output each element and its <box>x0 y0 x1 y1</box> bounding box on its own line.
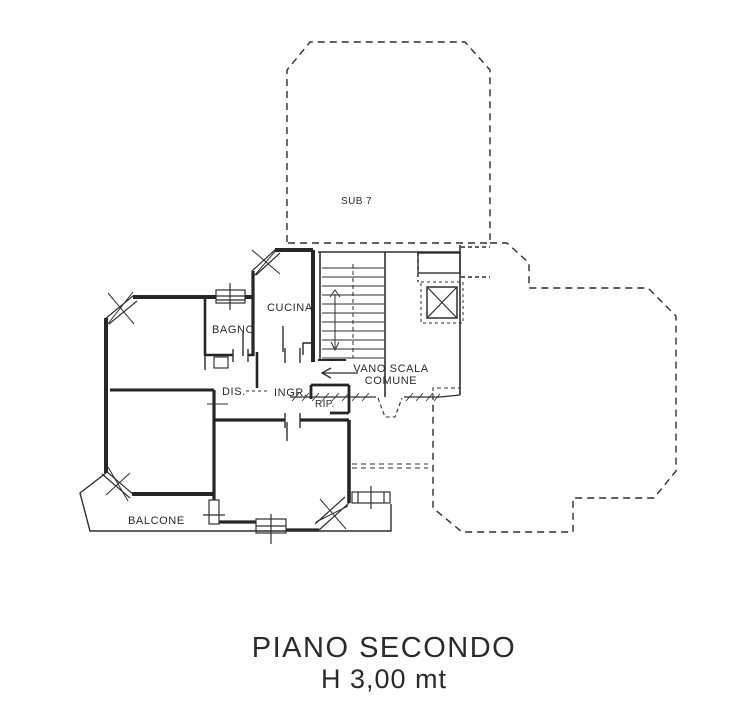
lobby-closet <box>418 253 460 273</box>
living-corner-window <box>315 497 349 530</box>
southwest-corner-window <box>102 467 134 501</box>
floor-plan-drawing: SUB 7 CUCINA BAGNO DIS. INGR. RIP. VANO … <box>0 0 754 725</box>
bath-door <box>233 333 248 362</box>
storage-south-window <box>352 486 390 509</box>
living-south-window <box>256 514 286 544</box>
floor-title: PIANO SECONDO <box>252 632 516 664</box>
floor-plan-page: SUB 7 CUCINA BAGNO DIS. INGR. RIP. VANO … <box>0 0 754 725</box>
sub-label: SUB 7 <box>341 196 372 207</box>
kitchen-corner-window <box>252 248 280 276</box>
elevator-x-icon <box>427 287 457 318</box>
kitchen-door <box>283 326 300 363</box>
north-window <box>216 283 245 310</box>
title-block: PIANO SECONDO H 3,00 mt <box>252 632 516 694</box>
right-wing-outline <box>433 243 676 532</box>
room-label-cucina: CUCINA <box>267 302 313 314</box>
light-well <box>378 398 402 417</box>
labels: SUB 7 CUCINA BAGNO DIS. INGR. RIP. VANO … <box>128 196 429 527</box>
top-wing-outline <box>287 42 490 242</box>
living-door <box>285 413 300 441</box>
room-label-ingr: INGR. <box>274 387 308 399</box>
floor-height: H 3,00 mt <box>321 664 447 694</box>
room-label-rip: RIP. <box>315 399 335 410</box>
room-label-bagno: BAGNO <box>212 324 255 336</box>
building-outline <box>287 42 676 532</box>
room-label-balcone: BALCONE <box>128 515 185 527</box>
room-label-dis: DIS. <box>222 386 246 398</box>
neighbor-balcony-edge <box>352 464 428 468</box>
northwest-corner-window <box>105 292 137 325</box>
bath-fixture <box>214 357 228 368</box>
room-label-comune: COMUNE <box>365 375 418 387</box>
room-label-vano-scala: VANO SCALA <box>353 363 429 375</box>
